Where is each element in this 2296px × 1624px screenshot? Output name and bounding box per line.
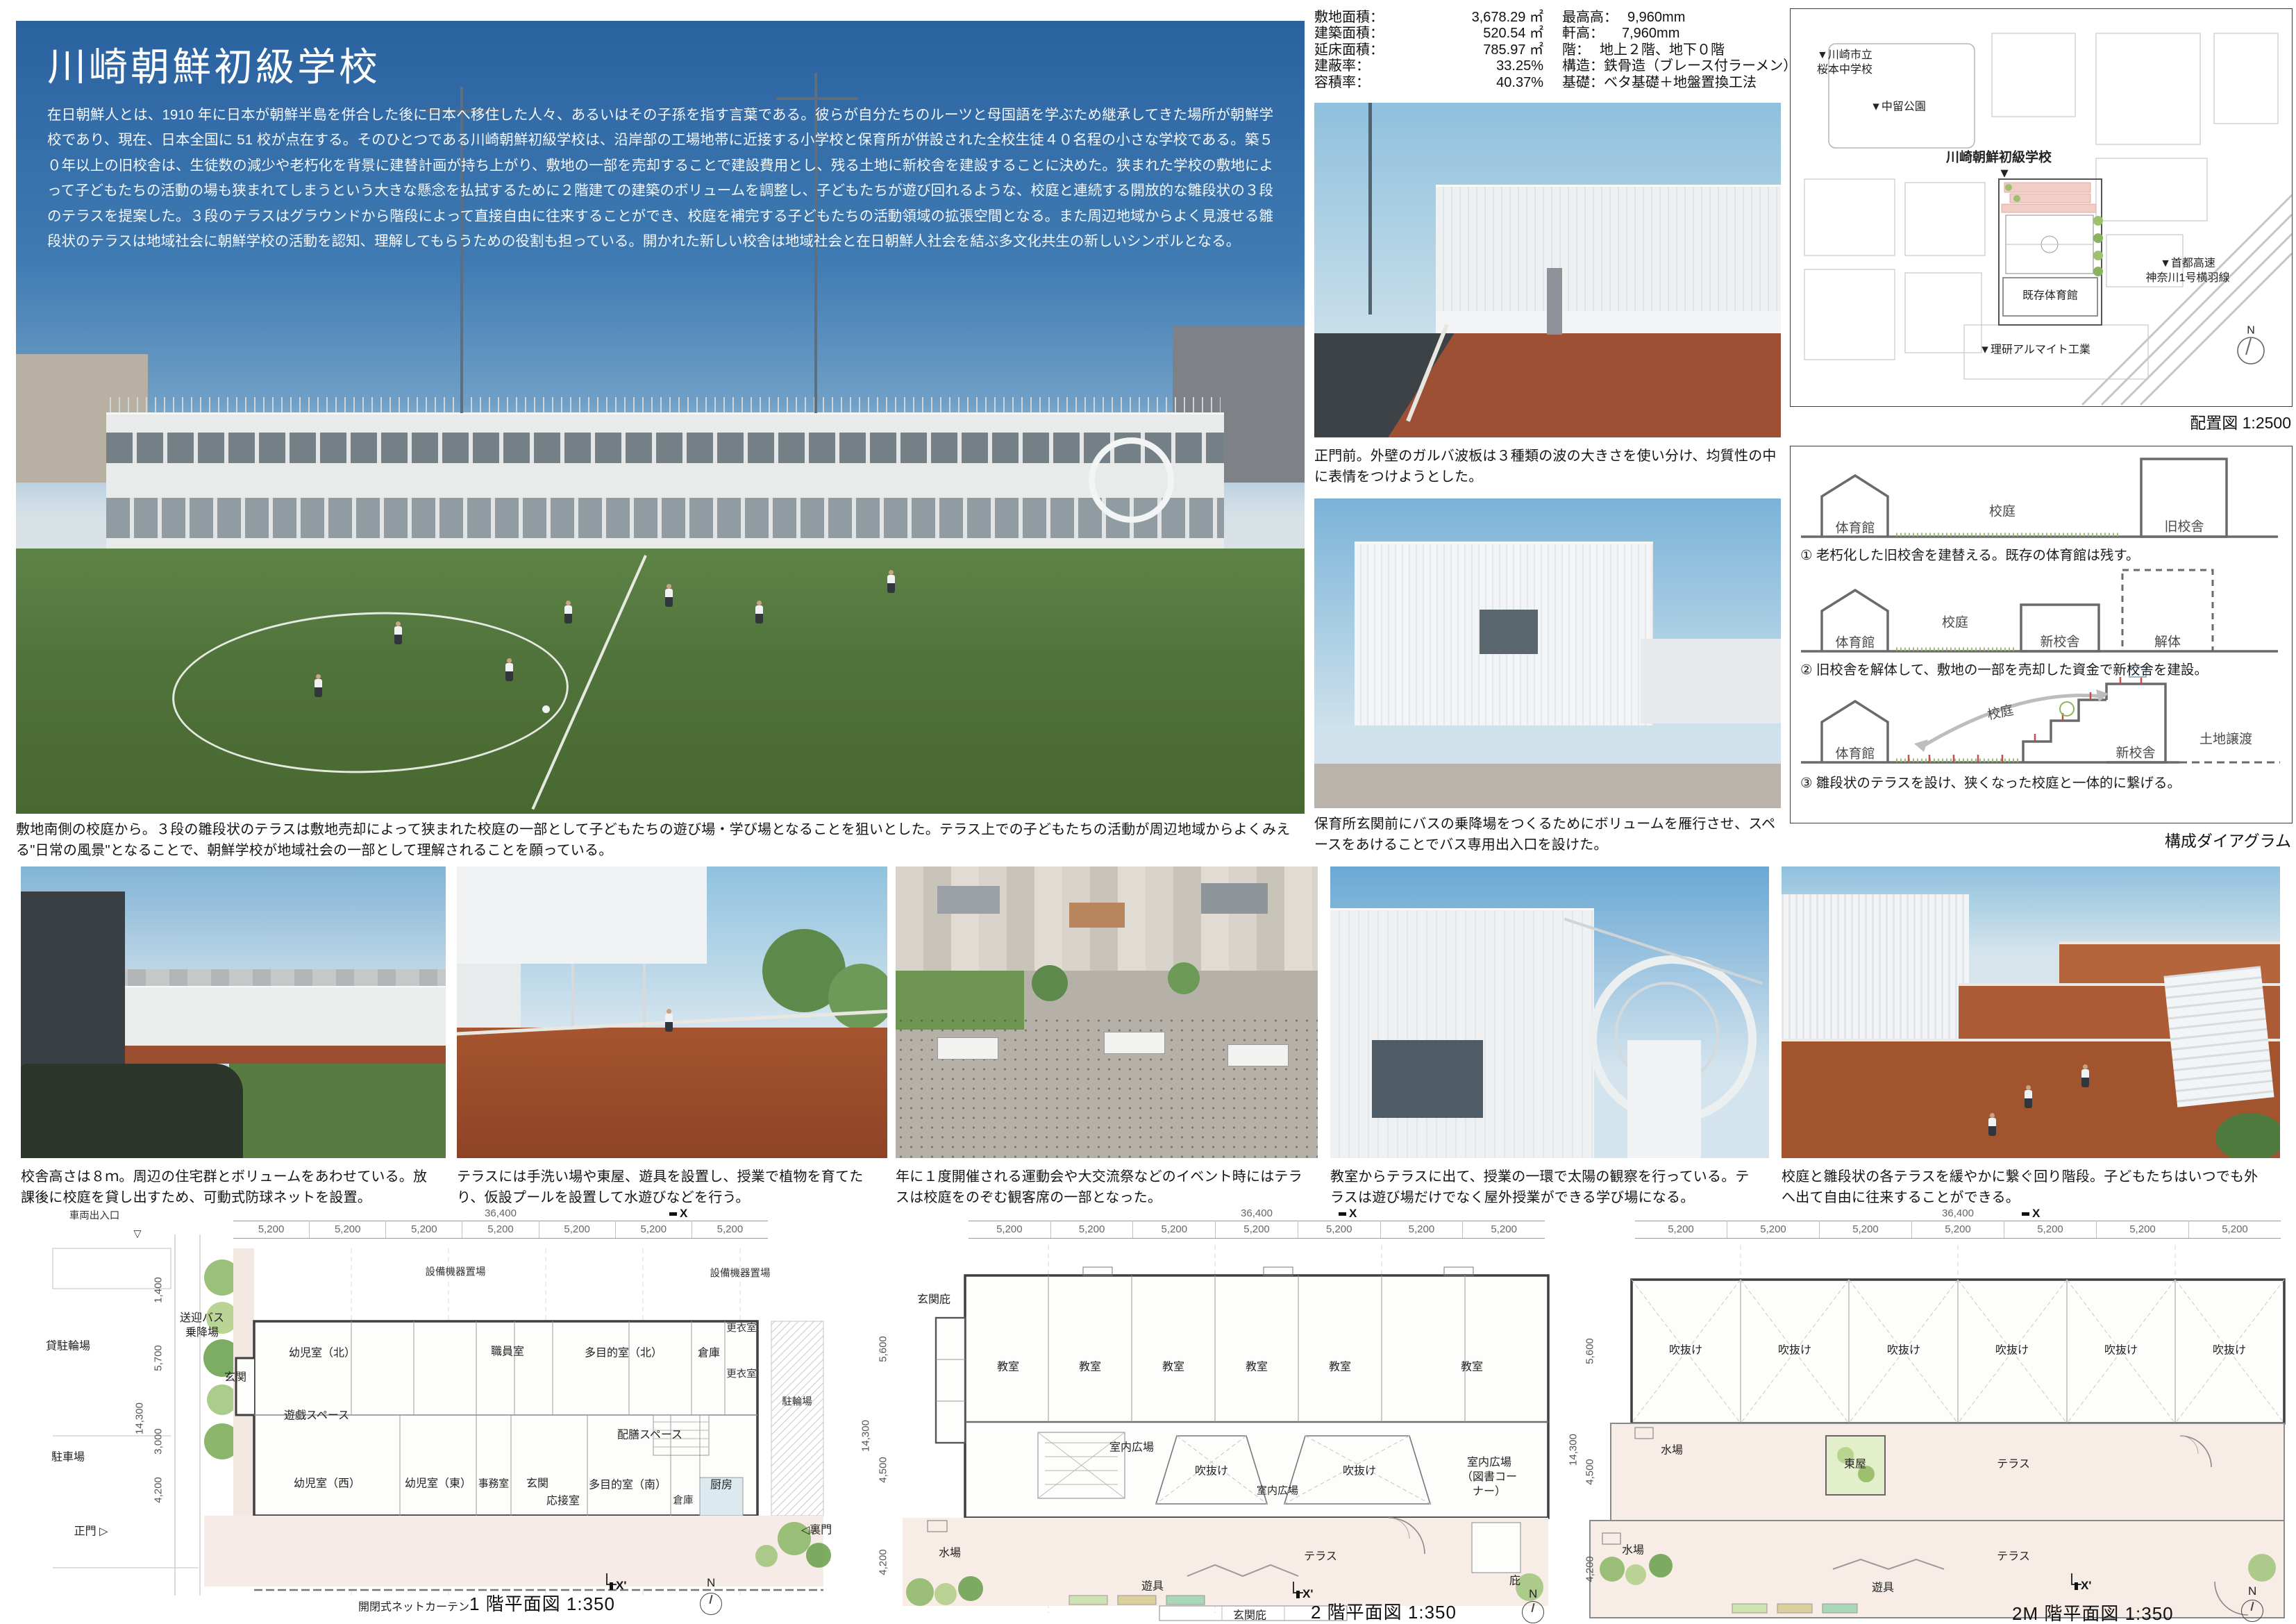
- presentation-board: 川崎朝鮮初級学校 在日朝鮮人とは、1910 年に日本が朝鮮半島を併合した後に日本…: [0, 0, 2296, 1624]
- child-figure: [2025, 1090, 2032, 1108]
- room-catering: 配膳スペース: [617, 1429, 682, 1443]
- spiral-stair: [1089, 437, 1174, 523]
- tent: [1104, 1032, 1165, 1054]
- dim-total: 36,400: [969, 1208, 1545, 1221]
- caption-main: 敷地南側の校庭から。３段の雛段状のテラスは敷地売却によって狭まれた校庭の一部とし…: [16, 819, 1305, 862]
- plan-label-vehicle-arrow: ▽: [133, 1228, 141, 1241]
- dim-value: 5,200: [692, 1221, 768, 1238]
- spec-label: 建築面積：: [1314, 26, 1384, 42]
- dim-value: 5,200: [615, 1221, 692, 1238]
- photo-terrace-use: [457, 867, 887, 1158]
- caption-row2-4: 教室からテラスに出て、授業の一環で太陽の観察を行っている。テラスは遊び場だけでな…: [1330, 1166, 1761, 1209]
- spec-label: 構造：: [1562, 58, 1604, 74]
- room-void: 吹抜け: [1887, 1344, 1920, 1359]
- roof-railing: [110, 397, 1221, 412]
- section-mark-x2: X': [2075, 1579, 2091, 1593]
- room-void: 吹抜け: [1195, 1465, 1228, 1480]
- dim-v: 4,500: [1584, 1459, 1596, 1485]
- room-void: 吹抜け: [2104, 1344, 2138, 1359]
- spec-value: 地上２階、地下０階: [1600, 42, 1725, 58]
- field-green: [229, 1064, 446, 1158]
- photo-bus-dropoff: [1314, 499, 1781, 808]
- room-indoor-plaza: 室内広場: [1257, 1484, 1298, 1498]
- room-void: 吹抜け: [1669, 1344, 1702, 1359]
- room-classroom: 教室: [1461, 1361, 1483, 1375]
- label-terrace: テラス: [1304, 1550, 1337, 1565]
- child-figure: [665, 589, 673, 607]
- spec-row: 敷地面積：3,678.29 ㎡: [1314, 10, 1543, 26]
- spec-table-right: 最高高：9,960mm 軒高：7,960mm 階：地上２階、地下０階 構造：鉄骨…: [1562, 10, 1782, 91]
- child-figure: [505, 663, 513, 681]
- diagram-label-old-school: 旧校舎: [2164, 517, 2204, 535]
- north-compass-icon: [700, 1593, 722, 1615]
- plan-1f-title: 1 階平面図 1:350: [469, 1590, 615, 1616]
- spec-value: 33.25%: [1496, 58, 1543, 74]
- room-locker: 更衣室: [726, 1323, 757, 1336]
- spec-value: 7,960mm: [1622, 26, 1679, 42]
- label-water-place: 水場: [1622, 1544, 1644, 1559]
- diagram-label-new-school: 新校舎: [2040, 632, 2079, 651]
- label-play-equipment: 遊具: [1872, 1582, 1894, 1596]
- spec-label: 容積率：: [1314, 75, 1370, 91]
- dim-v: 5,600: [878, 1336, 889, 1362]
- map-site-arrow-icon: ▼: [1998, 166, 2011, 183]
- roof: [1201, 883, 1268, 914]
- plan-label-vehicle-entrance: 車両出入口: [69, 1210, 120, 1223]
- room-equipment-yard: 設備機器置場: [710, 1268, 771, 1281]
- north-label: N: [707, 1576, 715, 1590]
- dim-value: 5,200: [1298, 1221, 1380, 1238]
- label-net-curtain: 開閉式ネットカーテン: [358, 1601, 469, 1616]
- spec-value: ベタ基礎＋地盤置換工法: [1604, 75, 1757, 91]
- caption-gate: 正門前。外壁のガルバ波板は３種類の波の大きさを使い分け、均質性の中に表情をつけよ…: [1314, 446, 1781, 488]
- child-figure: [394, 626, 402, 644]
- room-storage: 倉庫: [698, 1347, 720, 1362]
- child-figure: [315, 679, 322, 697]
- diagram-step-caption: ② 旧校舎を解体して、敷地の一部を売却した資金で新校舎を建設。: [1800, 658, 2208, 678]
- spec-value: 鉄骨造（ブレース付ラーメン）: [1604, 58, 1797, 74]
- diagram-label-new-school: 新校舎: [2115, 743, 2155, 762]
- spec-value: 520.54 ㎡: [1483, 26, 1543, 42]
- spec-row: 容積率：40.37%: [1314, 75, 1543, 91]
- school-building: [106, 412, 1224, 552]
- dim-value: 5,200: [2004, 1221, 2096, 1238]
- label-water-place: 水場: [939, 1547, 961, 1562]
- map-label-gym: 既存体育館: [2022, 290, 2078, 304]
- tree: [1032, 965, 1068, 1001]
- dim-v: 4,200: [1584, 1556, 1596, 1582]
- roof: [937, 886, 1000, 914]
- dim-v: 14,300: [860, 1420, 872, 1452]
- dim-bays: 5,2005,2005,2005,2005,2005,2005,200: [233, 1221, 768, 1239]
- label-entrance-canopy: 玄関庇: [1233, 1609, 1266, 1624]
- map-label-park: ▼中留公園: [1870, 101, 1926, 115]
- red-terrace-band: [104, 1046, 446, 1064]
- child-figure: [564, 605, 572, 623]
- map-label-highway: ▼首都高速 神奈川1号横羽線: [2146, 257, 2230, 286]
- dim-value: 5,200: [1727, 1221, 1819, 1238]
- map-label-site: 川崎朝鮮初級学校: [1946, 150, 2052, 167]
- diagram-label-yard: 校庭: [1942, 612, 1968, 631]
- dim-value: 5,200: [309, 1221, 385, 1238]
- room-bicycle-rental: 貸駐輪場: [46, 1340, 90, 1355]
- dim-v: 1,400: [153, 1277, 165, 1303]
- mark-back-gate: ◁裏門: [801, 1524, 832, 1539]
- section-mark-x: X: [1339, 1207, 1357, 1221]
- spec-value: 785.97 ㎡: [1483, 42, 1543, 58]
- power-pole: [1368, 103, 1372, 315]
- label-azumaya: 東屋: [1844, 1458, 1866, 1473]
- spec-label: 最高高：: [1562, 10, 1618, 26]
- north-compass-icon: [2241, 1600, 2263, 1622]
- room-infant-east: 幼児室（東）: [405, 1477, 471, 1492]
- diagram-label-land-transfer: 土地譲渡: [2199, 729, 2252, 748]
- diagram-label-gym: 体育館: [1835, 518, 1875, 537]
- mark-main-gate: 正門 ▷: [74, 1525, 108, 1540]
- spec-value: 40.37%: [1496, 75, 1543, 91]
- dim-v: 4,500: [878, 1457, 889, 1483]
- diagram-step-caption: ③ 雛段状のテラスを設け、狭くなった校庭と一体的に繋げる。: [1800, 771, 2181, 792]
- photo-spiral-staircase: [1330, 867, 1769, 1158]
- spec-row: 基礎：ベタ基礎＋地盤置換工法: [1562, 75, 1782, 91]
- spec-row: 最高高：9,960mm: [1562, 10, 1782, 26]
- foreground-building: [21, 891, 125, 1072]
- child-figure: [665, 1014, 673, 1032]
- dim-value: 5,200: [1380, 1221, 1463, 1238]
- dim-value: 5,200: [233, 1221, 309, 1238]
- spec-row: 建築面積：520.54 ㎡: [1314, 26, 1543, 42]
- hedge: [2215, 1113, 2280, 1158]
- dim-total: 36,400: [233, 1208, 768, 1221]
- child-figure: [1988, 1118, 1996, 1136]
- room-classroom: 教室: [1079, 1361, 1101, 1375]
- room-kitchen: 厨房: [710, 1479, 732, 1493]
- room-bus-dropoff: 送迎バス 乗降場: [180, 1312, 224, 1341]
- railing-panel: [1782, 894, 1969, 1044]
- room-void: 吹抜け: [1778, 1344, 1811, 1359]
- tent: [1227, 1044, 1289, 1066]
- dim-bays: 5,2005,2005,2005,2005,2005,2005,200: [969, 1221, 1545, 1239]
- dim-value: 5,200: [1050, 1221, 1133, 1238]
- dim-value: 5,200: [1462, 1221, 1545, 1238]
- room-play-space: 遊戯スペース: [284, 1409, 349, 1424]
- label-play-equipment: 遊具: [1141, 1580, 1164, 1595]
- north-label: N: [2248, 1584, 2256, 1598]
- section-mark-x: X: [669, 1207, 687, 1221]
- spec-value: 3,678.29 ㎡: [1472, 10, 1543, 26]
- diagram-label-yard: 校庭: [1989, 501, 2016, 520]
- intro-text: 在日朝鮮人とは、1910 年に日本が朝鮮半島を併合した後に日本へ移住した人々、あ…: [47, 103, 1273, 255]
- floor-plan-1f: 36,400 5,2005,2005,2005,2005,2005,2005,2…: [25, 1207, 891, 1622]
- window-opening: [1480, 610, 1538, 654]
- room-void: 吹抜け: [1343, 1465, 1376, 1480]
- caption-bus: 保育所玄関前にバスの乗降場をつくるためにボリュームを雁行させ、スペースをあけるこ…: [1314, 814, 1781, 856]
- dim-value: 5,200: [2096, 1221, 2188, 1238]
- map-label-factory: ▼理研アルマイト工業: [1979, 344, 2090, 358]
- room-bike-parking: 駐輪場: [782, 1396, 812, 1409]
- caption-row2-1: 校舎高さは８ｍ。周辺の住宅群とボリュームをあわせている。放課後に校庭を貸し出すた…: [21, 1166, 437, 1209]
- diagram-label-gym: 体育館: [1835, 744, 1875, 762]
- glass-opening: [1372, 1040, 1483, 1118]
- page-title: 川崎朝鮮初級学校: [47, 36, 380, 92]
- map-label-middle-school: ▼川崎市立 桜本中学校: [1817, 49, 1872, 78]
- spec-row: 構造：鉄骨造（ブレース付ラーメン）: [1562, 58, 1782, 74]
- photo-school-volume: [21, 867, 446, 1158]
- room-classroom: 教室: [997, 1361, 1019, 1375]
- label-terrace: テラス: [1997, 1458, 2030, 1473]
- room-indoor-plaza: 室内広場: [1109, 1441, 1154, 1456]
- spec-label: 階：: [1562, 42, 1590, 58]
- ground: [1314, 764, 1781, 808]
- roof: [1069, 903, 1125, 928]
- spec-row: 階：地上２階、地下０階: [1562, 42, 1782, 58]
- room-entrance-south: 玄関: [526, 1477, 548, 1492]
- dim-value: 5,200: [2188, 1221, 2281, 1238]
- tent: [937, 1037, 998, 1060]
- room-reception: 応接室: [546, 1495, 580, 1509]
- room-void: 吹抜け: [1995, 1344, 2029, 1359]
- spec-label: 延床面積：: [1314, 42, 1384, 58]
- room-locker: 更衣室: [726, 1368, 757, 1382]
- spec-row: 延床面積：785.97 ㎡: [1314, 42, 1543, 58]
- photo-front-gate: [1314, 103, 1781, 437]
- dim-value: 5,200: [969, 1221, 1050, 1238]
- caption-row2-3: 年に１度開催される運動会や大交流祭などのイベント時にはテラスは校庭をのぞむ観客席…: [896, 1166, 1312, 1209]
- plan-2m-drawing: [1569, 1207, 2296, 1622]
- spec-label: 建蔽率：: [1314, 58, 1370, 74]
- canopy-structure: [457, 867, 707, 964]
- dim-v: 5,700: [153, 1345, 165, 1371]
- room-office: 事務室: [478, 1477, 509, 1491]
- soccer-ball: [542, 705, 550, 713]
- spec-row: 軒高：7,960mm: [1562, 26, 1782, 42]
- dim-value: 5,200: [1635, 1221, 1727, 1238]
- north-label: N: [1529, 1587, 1537, 1601]
- map-north-label: N: [2247, 324, 2255, 339]
- plan-2f-title: 2 階平面図 1:350: [1311, 1598, 1457, 1624]
- dim-value: 5,200: [1911, 1221, 2004, 1238]
- dim-v: 4,200: [878, 1549, 889, 1575]
- school-wall-corrugated: [1436, 185, 1781, 322]
- room-classroom: 教室: [1162, 1361, 1184, 1375]
- spec-value: 9,960mm: [1627, 10, 1685, 26]
- plan-2m-title: 2M 階平面図 1:350: [2012, 1600, 2174, 1624]
- diagram-label-gym: 体育館: [1835, 633, 1875, 651]
- dim-v: 5,600: [1584, 1338, 1596, 1364]
- tree: [828, 964, 887, 1030]
- label-terrace: テラス: [1997, 1550, 2030, 1565]
- white-stair: [2163, 966, 2274, 1107]
- child-figure: [887, 575, 895, 593]
- child-figure: [755, 605, 763, 623]
- room-storage: 倉庫: [673, 1495, 694, 1508]
- dim-value: 36,400: [485, 1207, 517, 1219]
- room-indoor-plaza-library: 室内広場 （図書コーナー）: [1457, 1456, 1523, 1499]
- floor-plan-2m: 36,400 5,2005,2005,2005,2005,2005,2005,2…: [1569, 1207, 2296, 1622]
- map-caption: 配置図 1:2500: [1790, 410, 2291, 433]
- dim-v: 3,000: [153, 1428, 165, 1455]
- main-photo: 川崎朝鮮初級学校 在日朝鮮人とは、1910 年に日本が朝鮮半島を併合した後に日本…: [16, 21, 1305, 814]
- dim-value: 5,200: [1132, 1221, 1215, 1238]
- caption-row2-2: テラスには手洗い場や東屋、遊具を設置し、授業で植物を育てたり、仮設プールを設置し…: [457, 1166, 880, 1209]
- north-compass-icon: [1522, 1601, 1544, 1623]
- dim-bays: 5,2005,2005,2005,2005,2005,2005,200: [1635, 1221, 2281, 1239]
- dim-total: 36,400: [1635, 1208, 2281, 1221]
- dim-value: 36,400: [1241, 1207, 1273, 1219]
- room-staff: 職員室: [491, 1346, 524, 1360]
- red-terrace-floor: [457, 1028, 887, 1158]
- white-building-sliver: [457, 964, 521, 1030]
- plan-2f-drawing: [861, 1207, 1555, 1622]
- dim-value: 5,200: [385, 1221, 462, 1238]
- side-wing: [1641, 639, 1781, 723]
- dim-v: 4,200: [153, 1477, 165, 1503]
- room-classroom: 教室: [1329, 1361, 1351, 1375]
- school-band: [104, 986, 446, 1048]
- child-figure: [2081, 1069, 2089, 1087]
- floor-plan-2f: 36,400 5,2005,2005,2005,2005,2005,2005,2…: [861, 1207, 1555, 1622]
- room-equipment-yard: 設備機器置場: [426, 1266, 486, 1280]
- spec-table-left: 敷地面積：3,678.29 ㎡ 建築面積：520.54 ㎡ 延床面積：785.9…: [1314, 10, 1543, 91]
- sign-pillar: [1547, 268, 1562, 335]
- room-void: 吹抜け: [2213, 1344, 2246, 1359]
- label-eaves: 庇: [1509, 1575, 1520, 1589]
- photo-sports-day-aerial: [896, 867, 1318, 1158]
- spec-label: 敷地面積：: [1314, 10, 1384, 26]
- diagram-step-caption: ① 老朽化した旧校舎を建替える。既存の体育館は残す。: [1800, 544, 2139, 564]
- room-multi-north: 多目的室（北）: [585, 1347, 662, 1362]
- label-entrance-canopy: 玄関庇: [917, 1294, 950, 1308]
- spec-label: 基礎：: [1562, 75, 1604, 91]
- room-multi-south: 多目的室（南）: [589, 1479, 667, 1493]
- dim-v: 14,300: [134, 1403, 146, 1434]
- stair-column: [1627, 1040, 1701, 1158]
- caption-row2-5: 校庭と雛段状の各テラスを緩やかに繋ぐ回り階段。子どもたちはいつでも外へ出て自由に…: [1782, 1166, 2268, 1209]
- diagram-panel: 体育館 校庭 旧校舎 体育館 校庭 新校舎 解体 体育館 校庭 新校舎 土地譲渡…: [1790, 446, 2293, 823]
- room-parking: 駐車場: [51, 1451, 85, 1466]
- dim-value: 5,200: [1215, 1221, 1298, 1238]
- power-pole-arm: [776, 97, 858, 100]
- dim-value: 5,200: [539, 1221, 615, 1238]
- diagram-caption: 構成ダイアグラム: [1790, 828, 2291, 851]
- diagram-label-demolition: 解体: [2154, 632, 2181, 651]
- room-entrance-north: 玄関: [224, 1371, 246, 1386]
- spec-label: 軒高：: [1562, 26, 1604, 42]
- label-water-place: 水場: [1661, 1444, 1683, 1459]
- building-mass: [1330, 908, 1594, 1158]
- room-infant-north: 幼児室（北）: [289, 1347, 355, 1362]
- dim-v: 14,300: [1568, 1434, 1579, 1466]
- room-classroom: 教室: [1246, 1361, 1268, 1375]
- dim-value: 5,200: [1819, 1221, 1911, 1238]
- room-infant-west: 幼児室（西）: [294, 1477, 360, 1492]
- foreground-trees: [21, 1064, 243, 1158]
- dim-value: 5,200: [462, 1221, 538, 1238]
- tree: [1168, 962, 1200, 994]
- section-mark-x: X: [2022, 1207, 2040, 1221]
- spec-row: 建蔽率：33.25%: [1314, 58, 1543, 74]
- dim-value: 36,400: [1942, 1207, 1974, 1219]
- site-map: ▼川崎市立 桜本中学校 ▼中留公園 川崎朝鮮初級学校 ▼ 既存体育館 ▼首都高速…: [1790, 8, 2293, 407]
- photo-terrace-steps: [1782, 867, 2280, 1158]
